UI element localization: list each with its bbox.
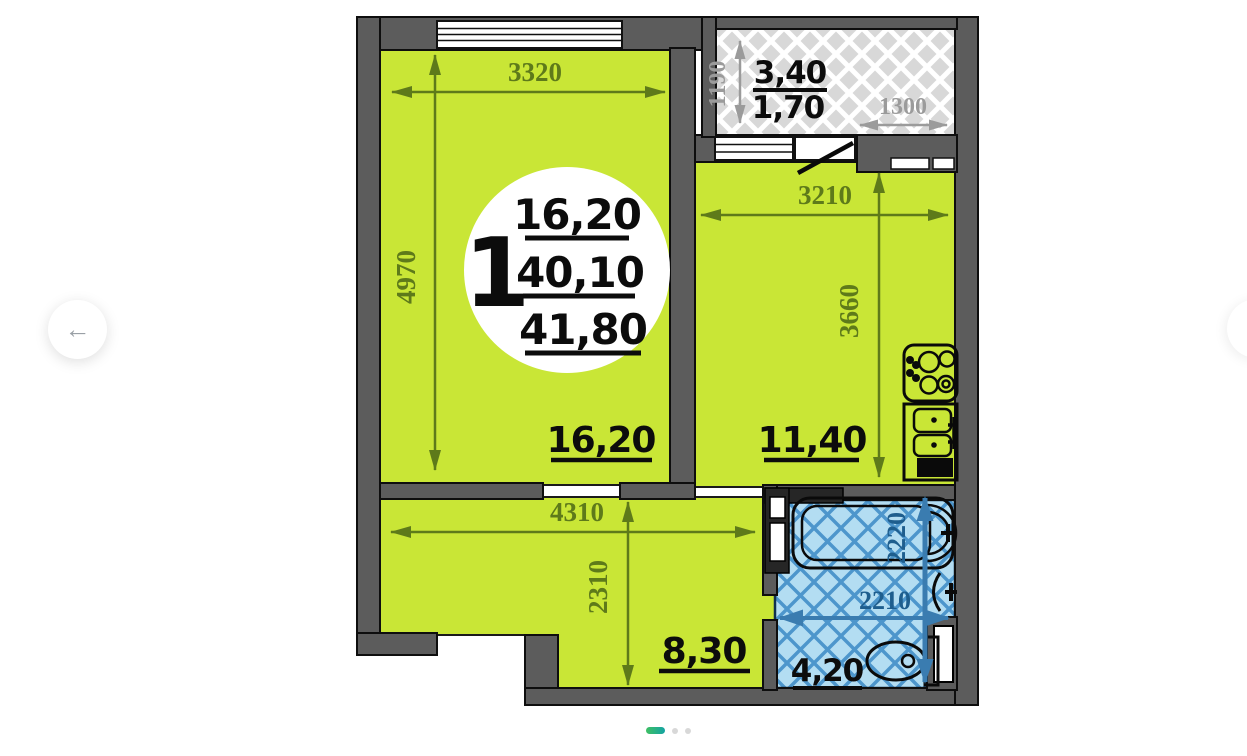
carousel-dot-active[interactable] bbox=[646, 727, 665, 734]
next-photo-button[interactable] bbox=[1227, 299, 1247, 358]
balcony-window bbox=[715, 137, 793, 160]
hallway-height-label: 2310 bbox=[583, 560, 613, 614]
balcony-floor bbox=[707, 28, 957, 138]
wall-slot-2 bbox=[933, 158, 954, 169]
svg-text:8,30: 8,30 bbox=[662, 631, 747, 672]
balcony-area-reduced-label: 1,70 bbox=[752, 90, 825, 126]
bathroom-area-label: 4,20 bbox=[791, 653, 864, 689]
living-room-window bbox=[437, 21, 622, 48]
kitchen-area-label: 11,40 bbox=[758, 420, 867, 461]
wall-room-kitchen bbox=[670, 48, 695, 483]
arrow-left-icon: ← bbox=[65, 314, 91, 345]
svg-text:3,40: 3,40 bbox=[754, 55, 827, 91]
wall-room-hall-left bbox=[380, 483, 543, 499]
svg-text:11,40: 11,40 bbox=[758, 420, 867, 461]
floor-plan: 3320 4970 3210 3660 4310 2310 1190 1300 bbox=[355, 15, 980, 707]
wall-balcony-top bbox=[702, 17, 957, 29]
carousel-indicator bbox=[646, 727, 691, 734]
living-room-area-label: 16,20 bbox=[547, 420, 656, 461]
total-area-value: 41,80 bbox=[519, 305, 647, 354]
balcony-height-label: 1190 bbox=[705, 61, 731, 108]
living-room-height-label: 4970 bbox=[391, 250, 421, 304]
area-value: 40,10 bbox=[516, 248, 644, 297]
wall-bottom-left bbox=[357, 633, 437, 655]
duct-slot-1 bbox=[770, 497, 785, 518]
balcony-area-label: 3,40 1,70 bbox=[752, 55, 827, 126]
info-circle: 1 16,20 40,10 41,80 bbox=[464, 167, 670, 373]
svg-text:16,20: 16,20 bbox=[547, 420, 656, 461]
wall-room-hall-right bbox=[620, 483, 695, 499]
carousel-dot[interactable] bbox=[672, 728, 678, 734]
wall-left bbox=[357, 17, 380, 653]
duct-slot-2 bbox=[770, 523, 785, 561]
wall-hall-bathroom-lower bbox=[763, 620, 777, 690]
wall-bottom bbox=[525, 688, 978, 705]
living-room-width-label: 3320 bbox=[508, 57, 562, 87]
svg-text:4,20: 4,20 bbox=[791, 653, 864, 689]
bathroom-height-label: 2220 bbox=[882, 512, 911, 564]
hallway-width-label: 4310 bbox=[550, 497, 604, 527]
kitchen-width-label: 3210 bbox=[798, 180, 852, 210]
previous-photo-button[interactable]: ← bbox=[48, 300, 107, 359]
hallway-area-label: 8,30 bbox=[659, 631, 750, 672]
wall-slot-1 bbox=[891, 158, 929, 169]
balcony-width-label: 1300 bbox=[879, 94, 927, 120]
photo-viewer: 3320 4970 3210 3660 4310 2310 1190 1300 bbox=[0, 0, 1247, 756]
carousel-dot[interactable] bbox=[685, 728, 691, 734]
kitchen-height-label: 3660 bbox=[834, 284, 864, 338]
bathroom-width-label: 2210 bbox=[859, 586, 911, 615]
living-area-value: 16,20 bbox=[513, 190, 641, 239]
